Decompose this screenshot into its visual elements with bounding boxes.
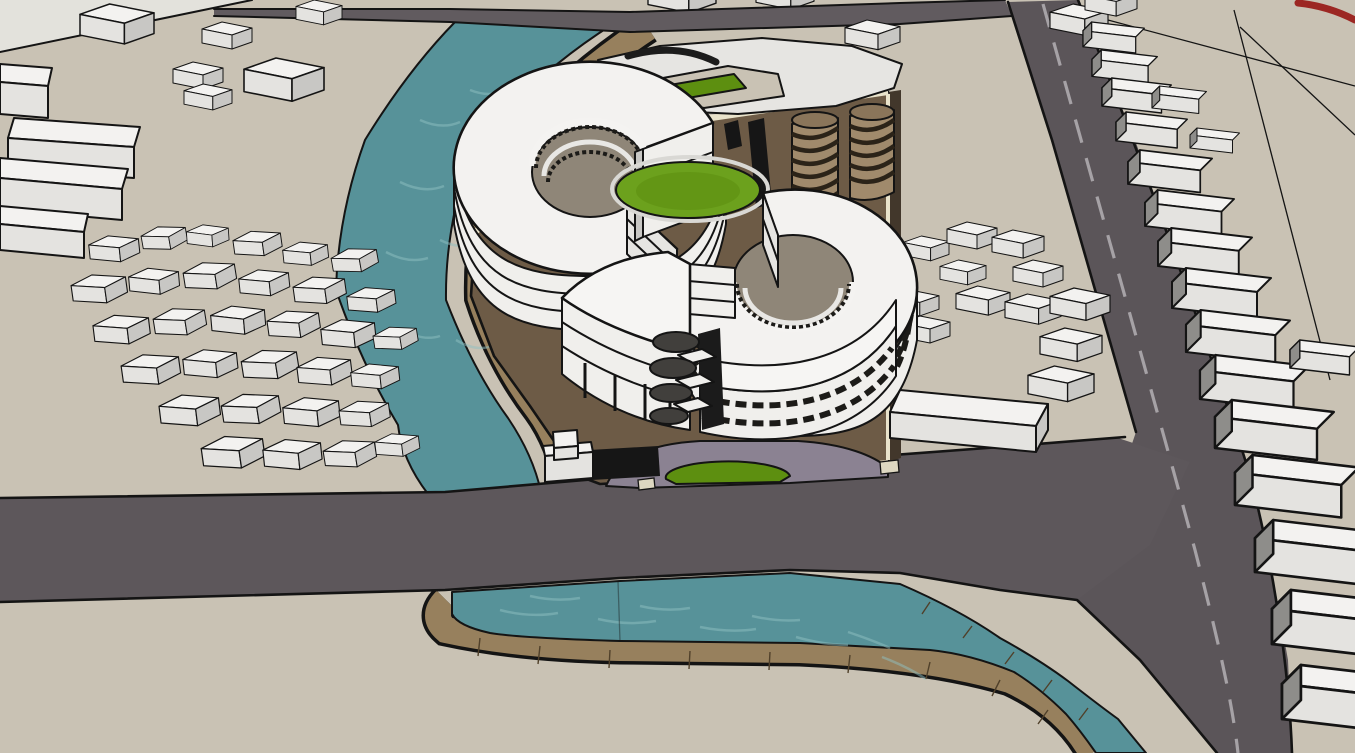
- central-lawn: [612, 157, 768, 221]
- curb-block: [880, 460, 899, 474]
- spiral-ramp-2: [850, 104, 894, 200]
- scene-canvas[interactable]: 3D architectural site model — aerial per…: [0, 0, 1355, 753]
- model-viewport-3d[interactable]: 3D architectural site model — aerial per…: [0, 0, 1355, 753]
- curb-block: [638, 478, 655, 490]
